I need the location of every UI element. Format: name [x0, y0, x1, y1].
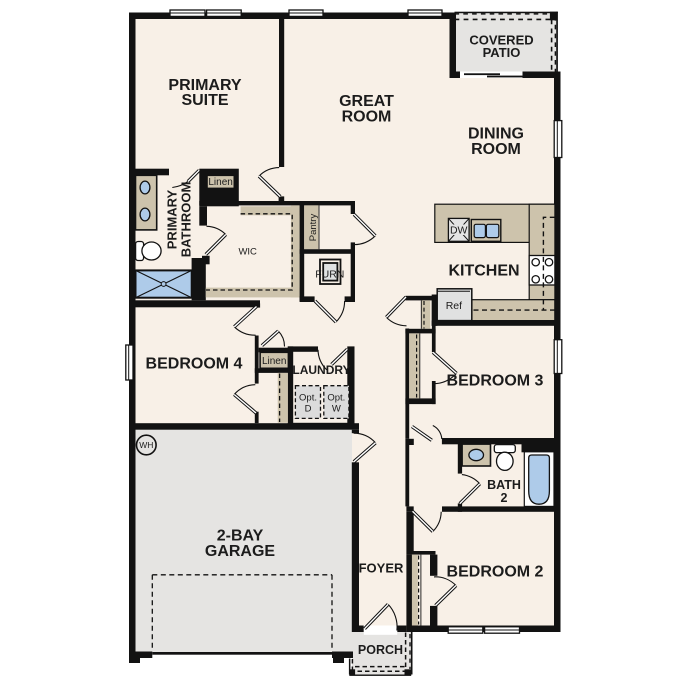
svg-text:Ref: Ref — [446, 300, 462, 312]
svg-text:ROOM: ROOM — [342, 109, 392, 126]
svg-text:LAUNDRY: LAUNDRY — [292, 363, 350, 377]
svg-text:Linen: Linen — [262, 356, 286, 367]
svg-text:Opt.: Opt. — [299, 393, 317, 404]
svg-text:BEDROOM 3: BEDROOM 3 — [447, 373, 544, 390]
svg-text:PORCH: PORCH — [358, 643, 403, 657]
svg-text:D: D — [305, 404, 312, 415]
svg-text:Opt.: Opt. — [327, 393, 345, 404]
svg-text:WIC: WIC — [238, 247, 257, 258]
svg-text:ROOM: ROOM — [471, 141, 521, 158]
svg-text:FURN: FURN — [315, 268, 344, 280]
svg-text:FOYER: FOYER — [359, 561, 404, 576]
svg-text:Linen: Linen — [208, 177, 232, 188]
svg-text:2: 2 — [501, 491, 508, 505]
svg-text:BEDROOM 2: BEDROOM 2 — [447, 564, 544, 581]
svg-text:BATH: BATH — [487, 478, 521, 492]
svg-text:DW: DW — [450, 225, 468, 237]
svg-text:PRIMARY: PRIMARY — [165, 189, 180, 249]
svg-text:WH: WH — [139, 440, 153, 450]
svg-text:2-BAY: 2-BAY — [217, 528, 264, 545]
svg-text:Pantry: Pantry — [308, 214, 319, 242]
svg-text:GREAT: GREAT — [339, 93, 394, 110]
svg-text:KITCHEN: KITCHEN — [448, 262, 519, 279]
svg-text:BATHROOM: BATHROOM — [179, 182, 194, 258]
svg-text:DINING: DINING — [468, 126, 524, 143]
svg-text:PATIO: PATIO — [483, 45, 521, 60]
svg-text:W: W — [332, 404, 341, 415]
svg-text:BEDROOM 4: BEDROOM 4 — [146, 356, 243, 373]
svg-text:SUITE: SUITE — [181, 92, 228, 109]
svg-text:GARAGE: GARAGE — [205, 543, 276, 560]
